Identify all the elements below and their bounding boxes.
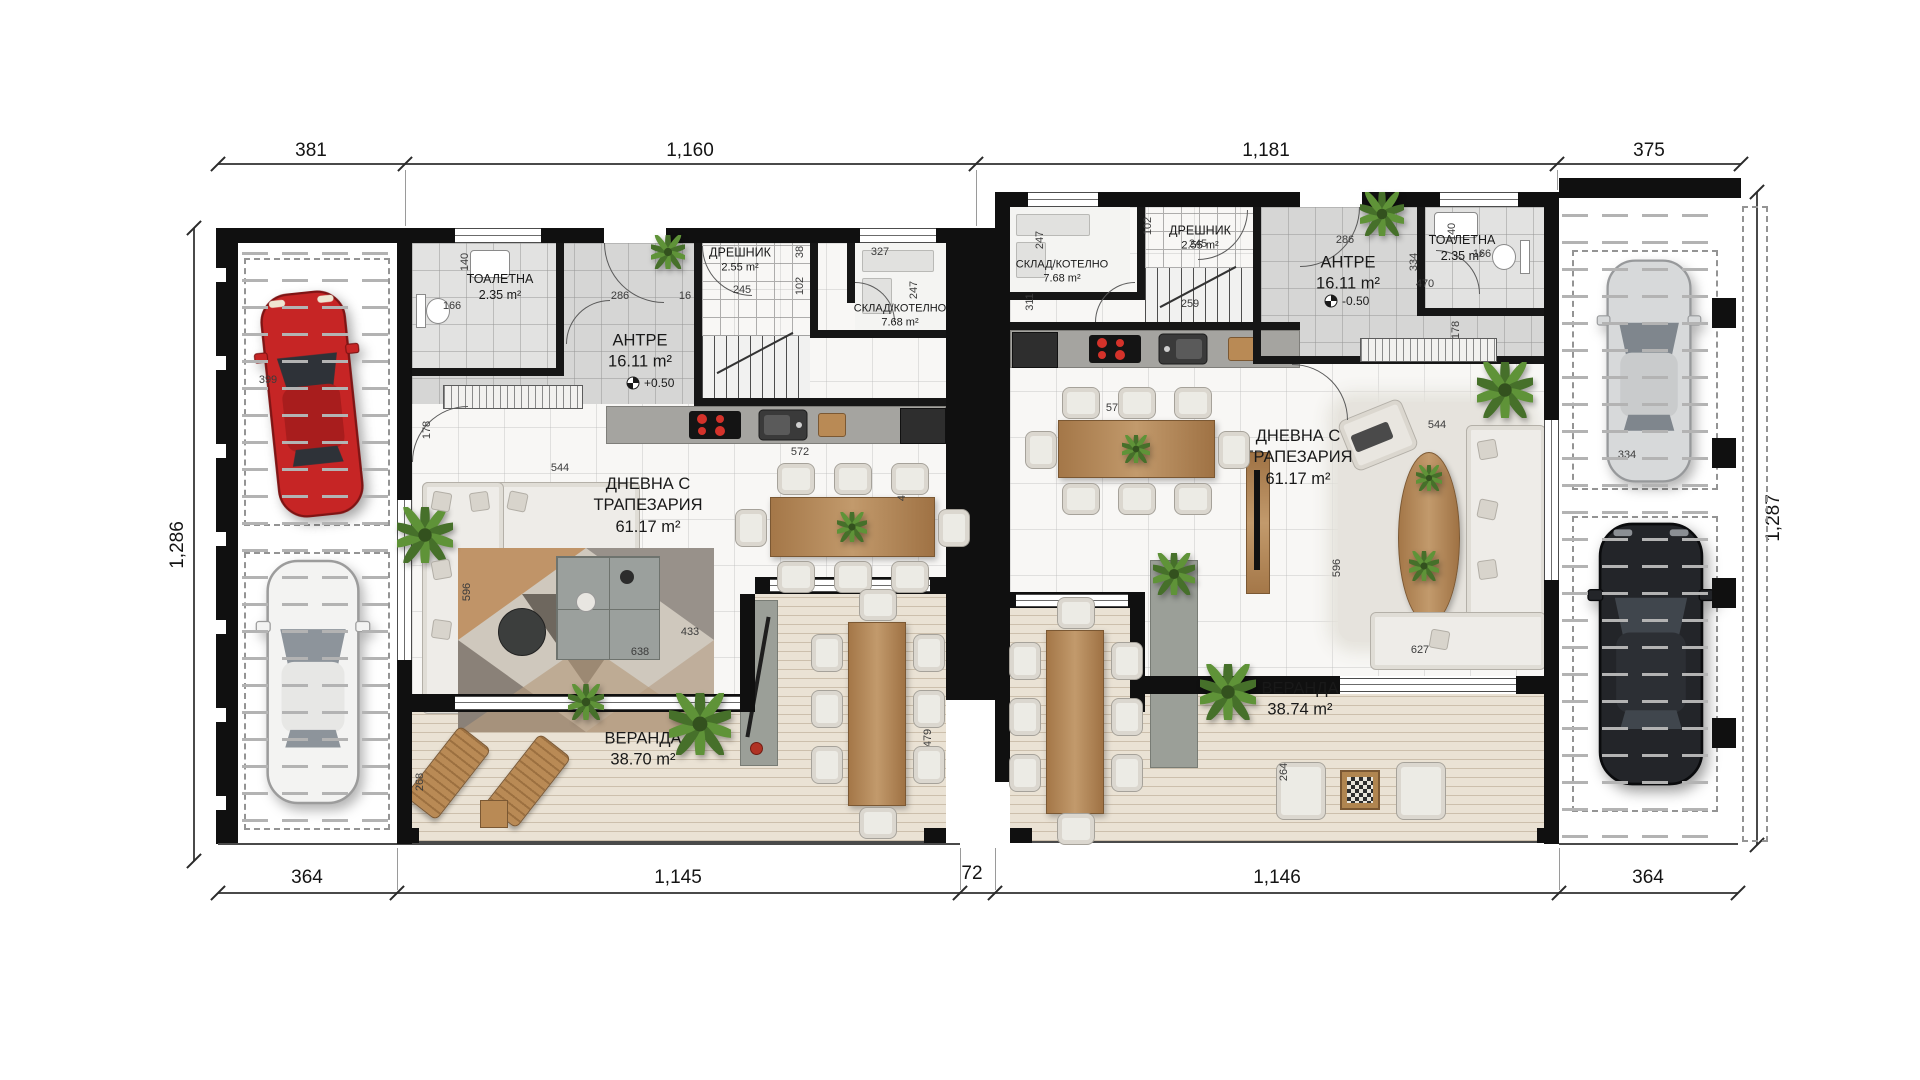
- plant-icon: [568, 684, 604, 720]
- plant-icon: [1360, 192, 1404, 236]
- dim-number: 166: [443, 300, 461, 312]
- plant-icon: [1122, 435, 1150, 463]
- plant-icon: [669, 693, 731, 755]
- paving-dash-row: [1562, 619, 1708, 622]
- dim-number: 572: [791, 446, 809, 458]
- paving-dash-row: [242, 252, 392, 255]
- wall-notch: [216, 620, 226, 634]
- chair: [913, 746, 945, 784]
- sofa-pillow: [469, 491, 490, 512]
- paving-dash-row: [242, 630, 392, 633]
- chair: [1111, 698, 1143, 736]
- plant-icon: [397, 507, 453, 563]
- dim-number: 102: [794, 277, 806, 295]
- chair: [1111, 642, 1143, 680]
- dim-number: 245: [1189, 238, 1207, 250]
- paving-dash-row: [1562, 754, 1708, 757]
- paving-dash-row: [242, 684, 392, 687]
- chair: [891, 463, 929, 495]
- plant: [1360, 192, 1404, 236]
- paving-dash-row: [1562, 214, 1708, 217]
- dim-number: 259: [1181, 298, 1199, 310]
- paving-dash-row: [1562, 322, 1708, 325]
- chair: [859, 589, 897, 621]
- paving-dash-row: [242, 360, 392, 363]
- dim-number: 334: [1408, 253, 1420, 271]
- chair: [1174, 483, 1212, 515]
- paving-dash-row: [1562, 457, 1708, 460]
- paving-dash-row: [242, 387, 392, 390]
- plant-icon: [1200, 664, 1256, 720]
- paving-dash-row: [1562, 484, 1708, 487]
- dim-number: 268: [414, 773, 426, 791]
- dim-number: 327: [871, 246, 889, 258]
- chair: [1009, 642, 1041, 680]
- paving-dash-row: [242, 792, 392, 795]
- chair: [834, 463, 872, 495]
- dim-number: 286: [611, 290, 629, 302]
- paving-dash-row: [242, 819, 392, 822]
- paving-dash-row: [242, 765, 392, 768]
- paving-dash-row: [242, 549, 392, 552]
- paving-dash-row: [1562, 592, 1708, 595]
- plant: [837, 512, 867, 542]
- dim-number: 479: [922, 729, 934, 747]
- dim-number: 140: [1446, 223, 1458, 241]
- generated-layer: 1401662861624538102178327247544572488596…: [0, 0, 1920, 1080]
- paving-dash-row: [1562, 835, 1708, 838]
- plant-icon: [1153, 553, 1195, 595]
- plant: [397, 507, 453, 563]
- chair: [1062, 387, 1100, 419]
- paving-dash-row: [1562, 376, 1708, 379]
- chair: [1025, 431, 1057, 469]
- chair: [859, 807, 897, 839]
- wall-notch: [216, 444, 226, 458]
- chair: [1057, 813, 1095, 845]
- plant: [669, 693, 731, 755]
- floor-plan-canvas: 381 1,160 1,181 375 364 1,145 72 1,146 3…: [0, 0, 1920, 1080]
- paving-dash-row: [1562, 403, 1708, 406]
- dim-number: 38: [794, 246, 806, 258]
- dim-number: 544: [1428, 419, 1446, 431]
- plant-icon: [837, 512, 867, 542]
- paving-dash-row: [1562, 511, 1708, 514]
- chair: [1062, 483, 1100, 515]
- dim-number: 286: [1336, 234, 1354, 246]
- chair: [1174, 387, 1212, 419]
- dim-number: 247: [908, 281, 920, 299]
- wall-stub: [1712, 718, 1736, 748]
- chair: [1118, 387, 1156, 419]
- dim-number: 16: [679, 290, 691, 302]
- wall-stub: [1712, 438, 1736, 468]
- chair: [1009, 698, 1041, 736]
- dim-number: 264: [1278, 763, 1290, 781]
- sofa-pillow: [506, 490, 529, 513]
- chair: [891, 561, 929, 593]
- paving-dash-row: [1562, 349, 1708, 352]
- level-symbol-icon: [1324, 294, 1338, 308]
- paving-dash-row: [1562, 565, 1708, 568]
- paving-dash-row: [1562, 430, 1708, 433]
- dim-number: 247: [1034, 231, 1046, 249]
- dim-number: 245: [733, 284, 751, 296]
- chair: [735, 509, 767, 547]
- paving-dash-row: [1562, 646, 1708, 649]
- dim-number: 311: [1024, 293, 1036, 311]
- sofa-pillow: [1476, 438, 1498, 460]
- wall-stub: [1712, 298, 1736, 328]
- dim-number: 470: [1416, 278, 1434, 290]
- chair: [1218, 431, 1250, 469]
- paving-dash-row: [1562, 700, 1708, 703]
- sofa-pillow: [431, 619, 452, 640]
- chair: [1057, 597, 1095, 629]
- plant-icon: [1416, 465, 1442, 491]
- paving-dash-row: [1562, 295, 1708, 298]
- paving-dash-row: [1562, 241, 1708, 244]
- paving-dash-row: [1562, 268, 1708, 271]
- level-symbol-icon: [626, 376, 640, 390]
- chair: [1111, 754, 1143, 792]
- plant: [1416, 465, 1442, 491]
- paving-dash-row: [242, 657, 392, 660]
- paving-dash-row: [242, 711, 392, 714]
- paving-dash-row: [1562, 808, 1708, 811]
- plant: [1477, 362, 1533, 418]
- paving-dash-row: [1562, 727, 1708, 730]
- paving-dash-row: [242, 306, 392, 309]
- chair: [777, 561, 815, 593]
- level-mark: -0.50: [1324, 294, 1369, 308]
- plant-icon: [1477, 362, 1533, 418]
- dim-number: 166: [1473, 248, 1491, 260]
- paving-dash-row: [242, 333, 392, 336]
- dim-number: 638: [631, 646, 649, 658]
- sofa-pillow: [1476, 498, 1499, 521]
- paving-dash-row: [1562, 781, 1708, 784]
- paving-dash-row: [242, 468, 392, 471]
- wall-notch: [216, 268, 226, 282]
- paving-dash-row: [242, 414, 392, 417]
- chair: [811, 690, 843, 728]
- plant-icon: [651, 235, 685, 269]
- paving-dash-row: [242, 279, 392, 282]
- dim-number: 140: [459, 253, 471, 271]
- plant: [568, 684, 604, 720]
- dim-number: 102: [1142, 217, 1154, 235]
- plant-icon: [1409, 551, 1439, 581]
- chair: [913, 634, 945, 672]
- chair: [938, 509, 970, 547]
- wall-notch: [216, 796, 226, 810]
- sofa-pillow: [1477, 559, 1498, 580]
- wall-notch: [216, 708, 226, 722]
- paving-dash-row: [242, 441, 392, 444]
- paving-dash-row: [242, 495, 392, 498]
- paving-dash-row: [242, 603, 392, 606]
- sofa-pillow: [430, 490, 452, 512]
- wall-notch: [216, 532, 226, 546]
- chair: [1118, 483, 1156, 515]
- chair: [777, 463, 815, 495]
- paving-dash-row: [242, 738, 392, 741]
- paving-dash-row: [1562, 673, 1708, 676]
- dim-number: 178: [421, 421, 433, 439]
- plant: [1200, 664, 1256, 720]
- paving-dash-row: [242, 576, 392, 579]
- dim-number: 433: [681, 626, 699, 638]
- chair: [811, 634, 843, 672]
- dim-number: 399: [259, 374, 277, 386]
- chair: [811, 746, 843, 784]
- dim-number: 596: [461, 583, 473, 601]
- paving-dash-row: [1562, 538, 1708, 541]
- dim-number: 627: [1411, 644, 1429, 656]
- plant: [651, 235, 685, 269]
- level-value: +0.50: [644, 376, 674, 390]
- sofa-pillow: [430, 558, 452, 580]
- plant: [1409, 551, 1439, 581]
- wall-notch: [216, 356, 226, 370]
- sofa-pillow: [1428, 628, 1450, 650]
- chair: [1009, 754, 1041, 792]
- plant: [1153, 553, 1195, 595]
- paving-dash-row: [242, 522, 392, 525]
- dim-number: 596: [1331, 559, 1343, 577]
- dim-number: 544: [551, 462, 569, 474]
- level-mark: +0.50: [626, 376, 674, 390]
- level-value: -0.50: [1342, 294, 1369, 308]
- plant: [1122, 435, 1150, 463]
- wall-stub: [1712, 578, 1736, 608]
- dim-number: 178: [1450, 321, 1462, 339]
- chair: [913, 690, 945, 728]
